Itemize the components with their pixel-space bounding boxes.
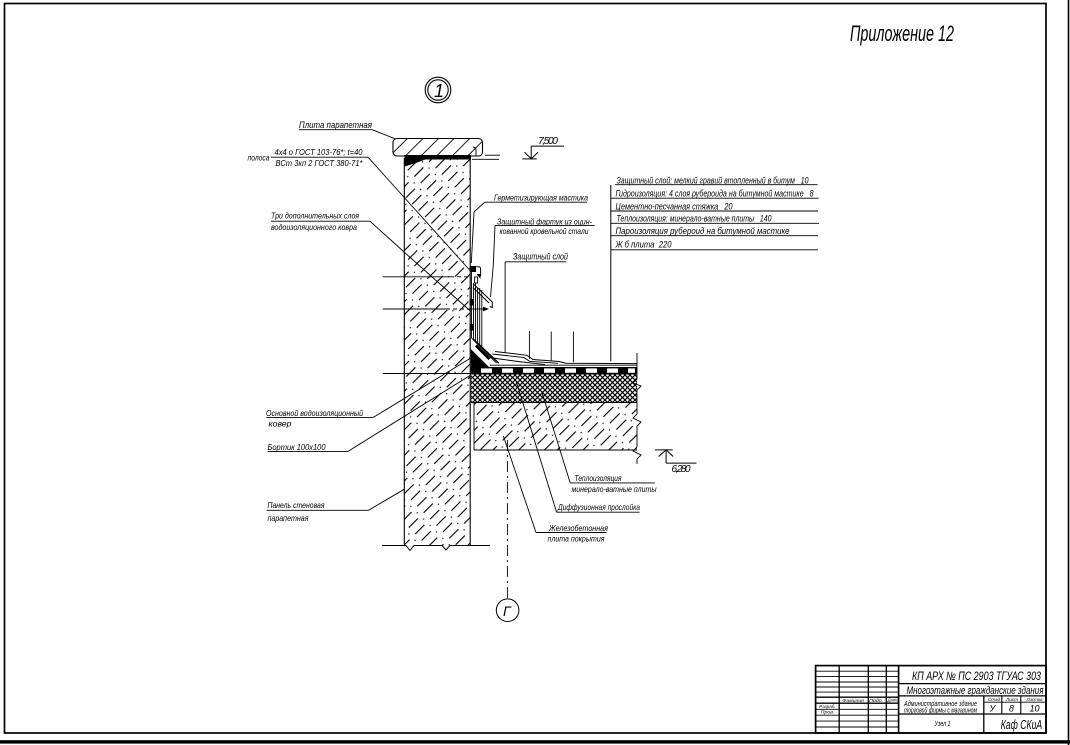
svg-text:Фамилия: Фамилия (842, 698, 864, 703)
svg-text:Пароизоляция рубероид на битум: Пароизоляция рубероид на битумной мастик… (616, 226, 790, 236)
svg-text:кованной кровельной стали: кованной кровельной стали (500, 226, 589, 236)
svg-text:Стад: Стад (988, 697, 1000, 702)
svg-text:Железобетонная: Железобетонная (548, 523, 608, 533)
svg-text:Защитный слой: Защитный слой (513, 252, 568, 262)
svg-text:КП АРХ № ПС 2903 ТГУАС 303: КП АРХ № ПС 2903 ТГУАС 303 (912, 669, 1041, 683)
svg-text:8: 8 (1009, 704, 1014, 714)
svg-text:7,500: 7,500 (538, 135, 558, 147)
svg-text:Приложение 12: Приложение 12 (850, 21, 954, 46)
svg-text:Разраб.: Разраб. (819, 704, 836, 709)
svg-text:10: 10 (1030, 704, 1040, 714)
svg-text:торговой фирмы с магазином: торговой фирмы с магазином (904, 707, 977, 715)
svg-text:Пров.: Пров. (821, 710, 835, 715)
svg-text:Защитный слой: мелкий гравий в: Защитный слой: мелкий гравий втопленный … (617, 175, 809, 185)
svg-text:Бортик 100х100: Бортик 100х100 (268, 442, 326, 452)
svg-text:минерало-ватные плиты: минерало-ватные плиты (572, 484, 658, 494)
svg-text:Подп.: Подп. (869, 698, 883, 703)
svg-text:Герметизирующая мастика: Герметизирующая мастика (494, 193, 588, 203)
svg-text:Лист: Лист (1005, 697, 1018, 702)
svg-text:4х4 о ГОСТ 103-76*; t=40: 4х4 о ГОСТ 103-76*; t=40 (275, 147, 363, 157)
svg-text:Цементно-песчанная стяжка 20: Цементно-песчанная стяжка 20 (616, 201, 733, 211)
svg-text:ВСт 3кп 2 ГОСТ 380-71*: ВСт 3кп 2 ГОСТ 380-71* (276, 158, 364, 168)
svg-text:Ж б плита 220: Ж б плита 220 (615, 240, 672, 250)
svg-text:Листов: Листов (1026, 697, 1044, 702)
svg-text:Гидроизоляция: 4 слоя рубероид: Гидроизоляция: 4 слоя рубероида на битум… (616, 189, 814, 199)
svg-text:парапетная: парапетная (268, 513, 309, 523)
svg-text:Многоэтажные гражданские здани: Многоэтажные гражданские здания (907, 685, 1044, 697)
svg-text:Административное здание: Административное здание (903, 700, 977, 708)
svg-text:1: 1 (434, 81, 444, 101)
svg-text:водоизоляционного ковра: водоизоляционного ковра (271, 222, 357, 232)
svg-text:6,280: 6,280 (672, 464, 691, 475)
svg-text:плита покрытия: плита покрытия (548, 533, 605, 543)
svg-text:Дата: Дата (887, 698, 899, 703)
svg-text:Каф СКиА: Каф СКиА (1001, 717, 1042, 732)
svg-text:Теплоизоляция: Теплоизоляция (575, 473, 622, 483)
svg-text:Основной водоизоляционный: Основной водоизоляционный (266, 408, 363, 418)
svg-text:Панель стеновая: Панель стеновая (268, 500, 325, 510)
svg-text:Узел 1: Узел 1 (934, 721, 951, 728)
svg-text:полоса: полоса (248, 153, 270, 163)
svg-text:Плита парапетная: Плита парапетная (299, 120, 372, 130)
svg-text:Три дополнительных слоя: Три дополнительных слоя (271, 210, 359, 220)
svg-text:ковер: ковер (269, 419, 292, 429)
svg-text:Теплоизоляция: минерало-ватные: Теплоизоляция: минерало-ватные плиты 140 (617, 214, 772, 224)
svg-text:Диффузионная прослойка: Диффузионная прослойка (557, 502, 640, 512)
